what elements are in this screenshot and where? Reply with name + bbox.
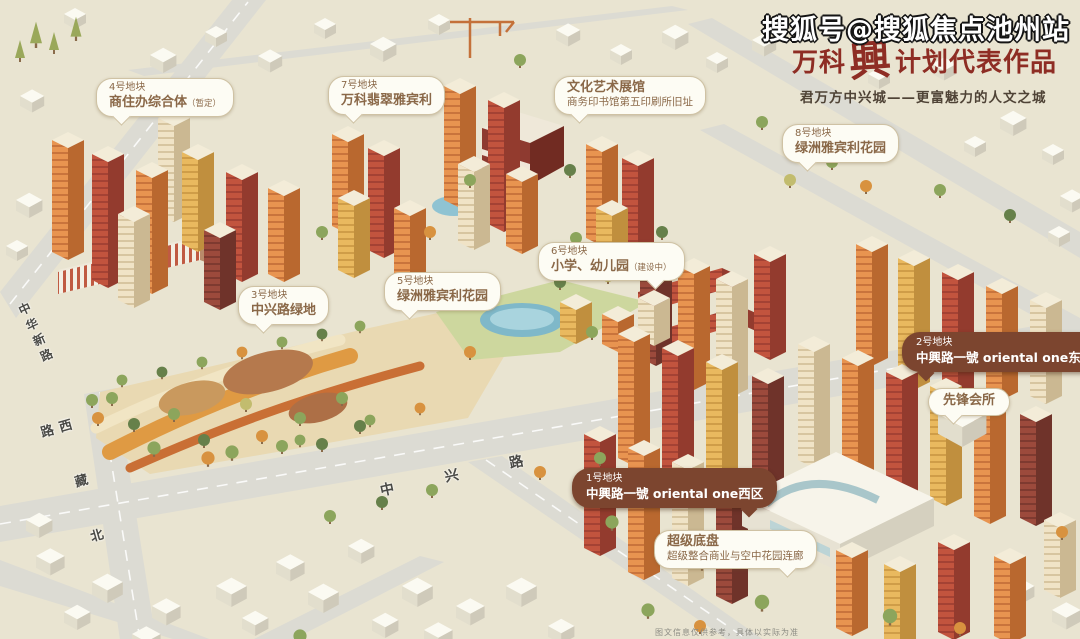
callout-plot2-number: 2号地块	[916, 337, 1080, 350]
callout-plot1-number: 1号地块	[586, 473, 763, 486]
watermark-text: 搜狐号@搜狐焦点池州站	[762, 8, 1070, 47]
callout-museum-name: 文化艺术展馆	[567, 80, 693, 96]
callout-plot5-number: 5号地块	[397, 276, 488, 289]
callout-plot8-number: 8号地块	[795, 128, 886, 141]
page-subtitle: 君万方中兴城——更富魅力的人文之城	[800, 86, 1047, 106]
callout-museum-subtitle: 商务印书馆第五印刷所旧址	[567, 96, 693, 109]
callout-plot8: 8号地块 绿洲雅宾利花园	[782, 124, 899, 163]
callout-plot5: 5号地块 绿洲雅宾利花园	[384, 272, 501, 311]
callout-plot4: 4号地块 商住办综合体（暂定）	[96, 78, 234, 117]
callout-clubhouse-name: 先锋会所	[943, 393, 995, 409]
title-emphasis-character: 興	[848, 42, 893, 79]
callout-plot4-name: 商住办综合体	[109, 95, 187, 110]
callout-plot7-name: 万科翡翠雅宾利	[341, 93, 432, 109]
callout-plot1: 1号地块 中興路一號 oriental one西区	[572, 468, 777, 508]
callout-plot7-number: 7号地块	[341, 80, 432, 93]
callout-plot7: 7号地块 万科翡翠雅宾利	[328, 76, 445, 115]
callout-plot3-name: 中兴路绿地	[251, 303, 316, 319]
callout-plot2: 2号地块 中興路一號 oriental one东区	[902, 332, 1080, 372]
callout-plot6-number: 6号地块	[551, 246, 672, 259]
title-suffix: 计划代表作品	[895, 42, 1057, 79]
callout-plot4-suffix: （暂定）	[187, 99, 221, 109]
callout-plot2-name: 中興路一號 oriental one东区	[916, 350, 1080, 366]
callout-podium-subtitle: 超级整合商业与空中花园连廊	[667, 550, 804, 563]
callout-plot6-name: 小学、幼儿园	[551, 259, 629, 274]
callout-plot4-number: 4号地块	[109, 82, 221, 95]
callout-podium: 超级底盘 超级整合商业与空中花园连廊	[654, 530, 817, 569]
callout-museum: 文化艺术展馆 商务印书馆第五印刷所旧址	[554, 76, 706, 115]
callout-plot6-suffix: （建设中）	[629, 263, 672, 273]
callout-plot3: 3号地块 中兴路绿地	[238, 286, 329, 325]
fineprint-disclaimer: 图文信息仅供参考，具体以实际为准	[655, 627, 799, 638]
callout-plot8-name: 绿洲雅宾利花园	[795, 141, 886, 157]
callout-clubhouse: 先锋会所	[928, 388, 1010, 416]
callout-plot3-number: 3号地块	[251, 290, 316, 303]
callout-plot6: 6号地块 小学、幼儿园（建设中）	[538, 242, 685, 281]
callout-plot5-name: 绿洲雅宾利花园	[397, 289, 488, 305]
callout-plot1-name: 中興路一號 oriental one西区	[586, 486, 763, 502]
callout-podium-name: 超级底盘	[667, 534, 804, 550]
masterplan-map-image: 搜狐号@搜狐焦点池州站 万科 興 计划代表作品 君万方中兴城——更富魅力的人文之…	[0, 0, 1080, 639]
page-title: 万科 興 计划代表作品	[792, 42, 1057, 79]
title-prefix: 万科	[792, 42, 846, 79]
